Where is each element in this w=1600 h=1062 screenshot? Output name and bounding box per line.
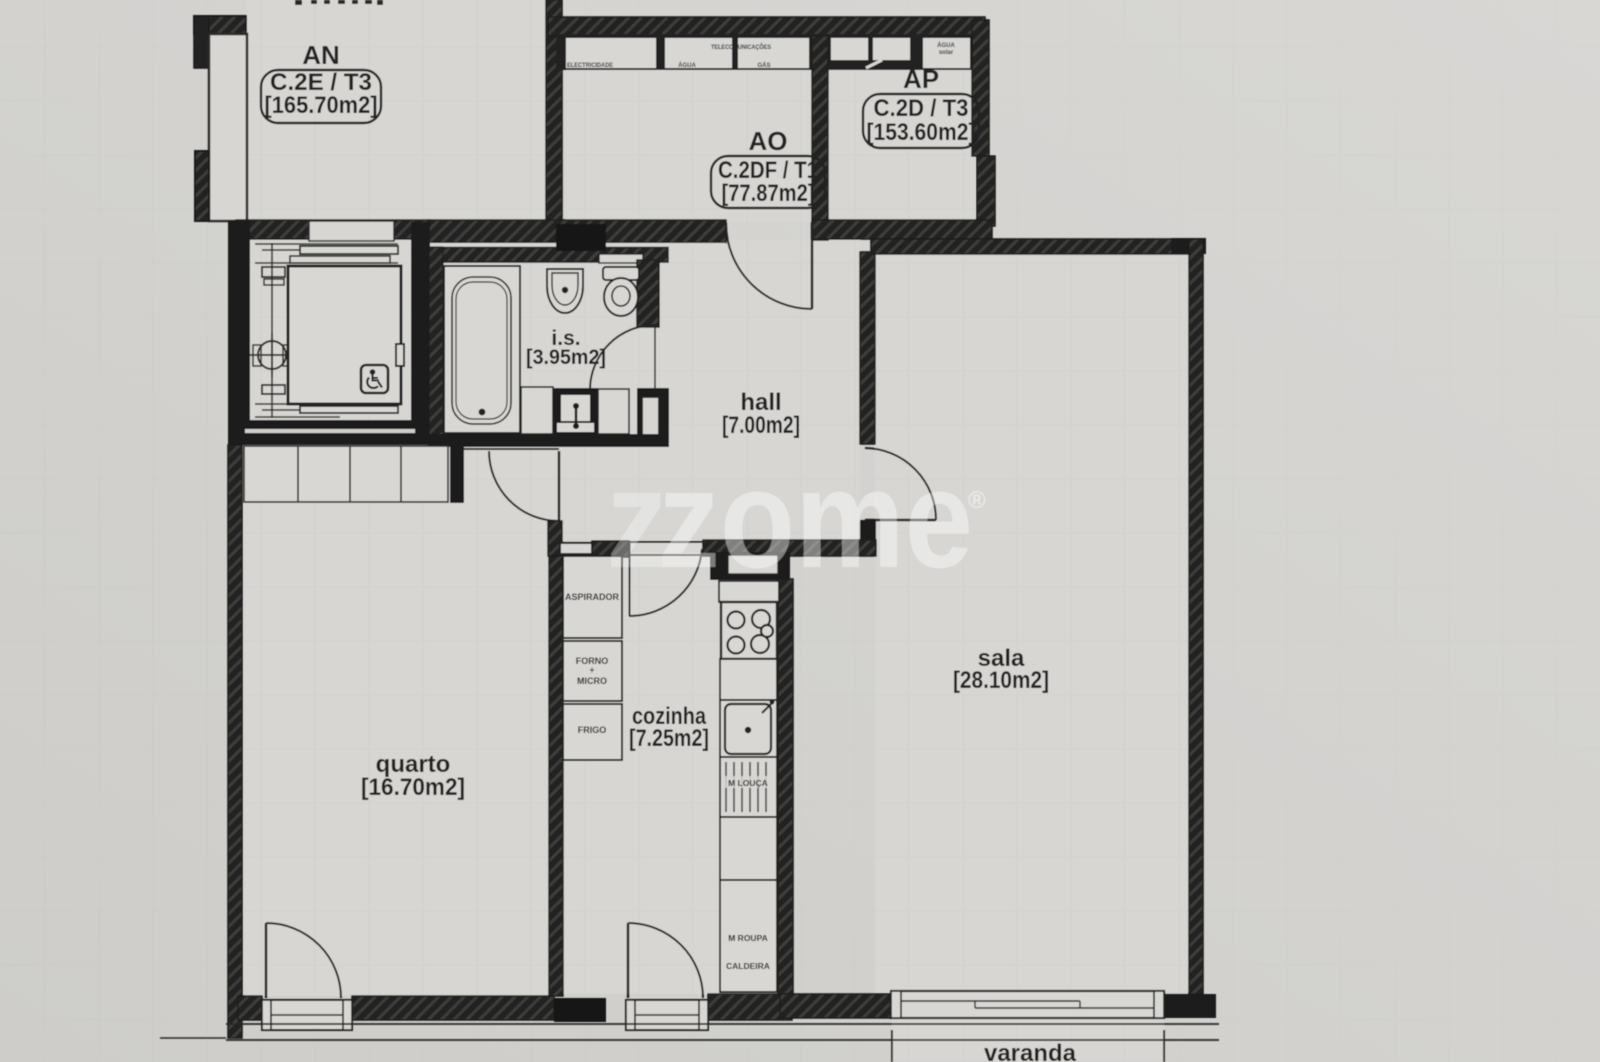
svg-text:[28.10m2]: [28.10m2] <box>953 667 1049 694</box>
svg-text:AP: AP <box>903 64 939 94</box>
svg-text:®: ® <box>968 487 986 514</box>
svg-text:M ROUPA: M ROUPA <box>728 933 768 943</box>
svg-text:TELECOMUNICAÇÕES: TELECOMUNICAÇÕES <box>711 44 771 51</box>
svg-text:M LOUÇA: M LOUÇA <box>728 778 768 788</box>
svg-text:[7.00m2]: [7.00m2] <box>722 412 800 439</box>
svg-text:[153.60m2]: [153.60m2] <box>867 119 976 146</box>
svg-text:[16.70m2]: [16.70m2] <box>361 774 465 801</box>
svg-text:solar: solar <box>939 50 954 56</box>
svg-text:varanda: varanda <box>984 1040 1077 1062</box>
svg-text:[7.25m2]: [7.25m2] <box>629 725 709 752</box>
svg-text:FRIGO: FRIGO <box>578 725 607 735</box>
svg-text:ÁGUA: ÁGUA <box>937 42 955 49</box>
svg-text:[77.87m2]: [77.87m2] <box>722 180 815 207</box>
svg-text:+: + <box>589 665 594 675</box>
svg-text:ÁGUA: ÁGUA <box>678 62 696 69</box>
svg-text:[3.95m2]: [3.95m2] <box>526 346 606 369</box>
svg-text:[165.70m2]: [165.70m2] <box>265 92 378 119</box>
svg-text:AO: AO <box>749 126 788 156</box>
svg-text:MICRO: MICRO <box>577 676 607 686</box>
svg-text:AN: AN <box>302 40 340 70</box>
svg-text:GÁS: GÁS <box>757 62 770 69</box>
svg-text:zome: zome <box>658 441 973 597</box>
svg-text:ELECTRICIDADE: ELECTRICIDADE <box>567 63 613 69</box>
svg-text:CALDEIRA: CALDEIRA <box>726 961 770 971</box>
svg-text:C.2D / T3: C.2D / T3 <box>874 95 969 122</box>
